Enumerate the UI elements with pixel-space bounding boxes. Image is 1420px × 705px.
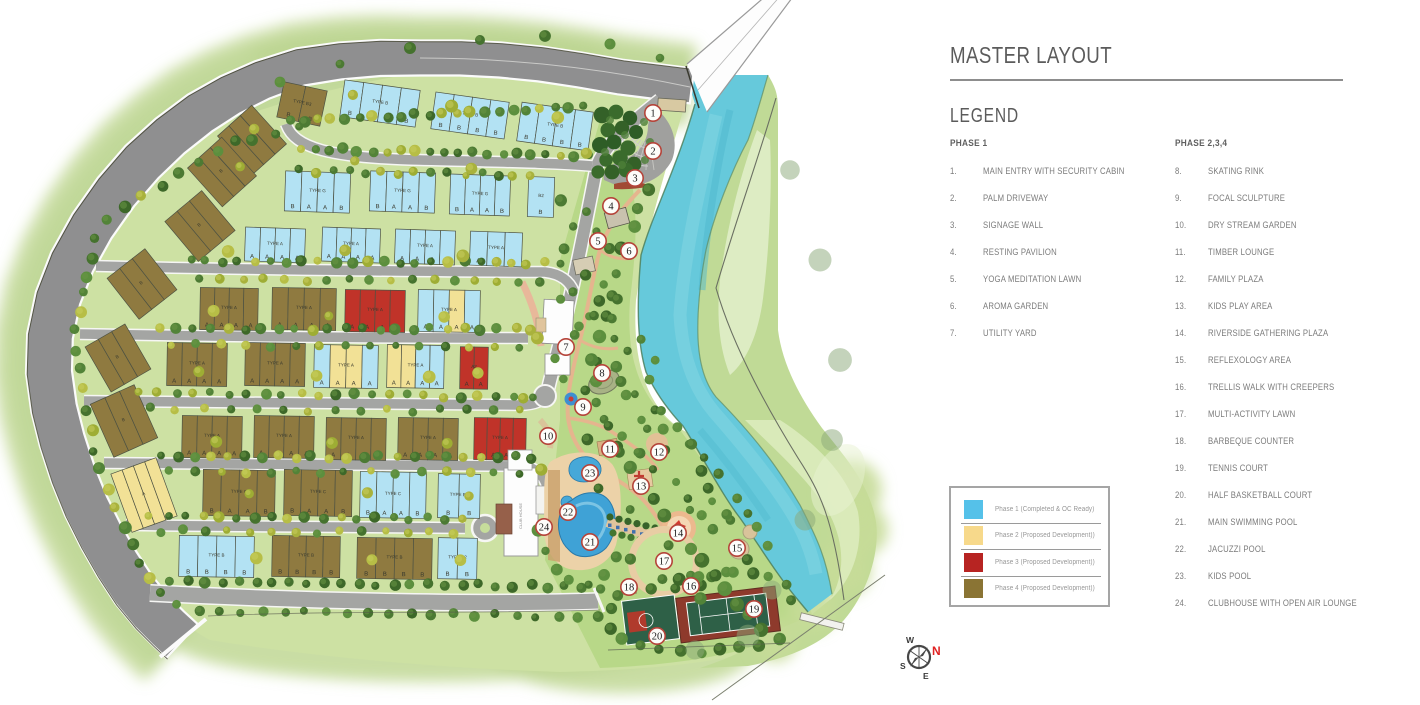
svg-text:A: A	[439, 325, 443, 331]
svg-text:A: A	[454, 325, 458, 331]
svg-text:A: A	[217, 379, 221, 385]
svg-text:B: B	[364, 571, 368, 577]
svg-text:22: 22	[563, 508, 574, 519]
svg-text:B: B	[456, 125, 461, 132]
svg-text:B: B	[438, 123, 443, 130]
svg-text:B: B	[475, 128, 480, 135]
svg-text:1: 1	[650, 109, 655, 120]
svg-text:TYPE A: TYPE A	[367, 307, 383, 312]
svg-text:TYPE A: TYPE A	[348, 435, 364, 440]
svg-text:A: A	[408, 205, 412, 211]
svg-text:TYPE A: TYPE A	[492, 435, 508, 440]
svg-text:A: A	[246, 509, 250, 515]
svg-text:TYPE G: TYPE G	[394, 188, 411, 194]
svg-text:B: B	[290, 509, 294, 515]
svg-text:15: 15	[732, 544, 743, 555]
svg-text:6: 6	[626, 247, 631, 258]
svg-text:A: A	[368, 381, 372, 387]
svg-text:B: B	[424, 206, 428, 212]
svg-text:TYPE B: TYPE B	[208, 552, 224, 557]
svg-text:5: 5	[595, 237, 600, 248]
svg-text:TYPE A: TYPE A	[189, 360, 205, 365]
svg-text:TYPE A: TYPE A	[338, 362, 354, 367]
svg-text:B: B	[186, 569, 190, 575]
svg-text:10: 10	[543, 432, 554, 443]
svg-text:7: 7	[563, 343, 568, 354]
svg-text:B2: B2	[538, 193, 544, 198]
svg-text:TYPE A: TYPE A	[276, 433, 292, 438]
svg-text:TYPE A: TYPE A	[267, 241, 283, 247]
svg-text:A: A	[202, 451, 206, 457]
svg-text:A: A	[485, 208, 489, 214]
svg-text:TYPE A: TYPE A	[417, 243, 433, 249]
svg-text:A: A	[320, 381, 324, 387]
svg-text:B: B	[500, 209, 504, 215]
svg-text:A: A	[327, 254, 331, 260]
svg-text:B: B	[455, 207, 459, 213]
svg-text:A: A	[323, 205, 327, 211]
svg-text:B: B	[312, 570, 316, 576]
svg-text:A: A	[435, 381, 439, 387]
svg-text:A: A	[406, 381, 410, 387]
svg-text:B: B	[445, 572, 449, 578]
svg-text:A: A	[382, 511, 386, 517]
svg-text:TYPE G: TYPE G	[472, 191, 489, 197]
svg-text:TYPE C: TYPE C	[385, 491, 402, 496]
svg-text:CLUB HOUSE: CLUB HOUSE	[518, 503, 523, 529]
svg-text:18: 18	[624, 583, 635, 594]
svg-text:TYPE A: TYPE A	[488, 245, 504, 251]
svg-text:B: B	[524, 135, 529, 142]
svg-text:E: E	[923, 671, 929, 681]
svg-text:TYPE B: TYPE B	[298, 552, 314, 557]
svg-text:19: 19	[749, 605, 760, 616]
svg-text:A: A	[479, 382, 483, 388]
svg-text:12: 12	[654, 448, 665, 459]
svg-text:B: B	[278, 570, 282, 576]
svg-text:24: 24	[539, 523, 550, 534]
svg-text:20: 20	[652, 632, 663, 643]
svg-text:TYPE A: TYPE A	[420, 435, 436, 440]
svg-text:B: B	[383, 572, 387, 578]
svg-text:TYPE G: TYPE G	[309, 188, 326, 194]
svg-text:B: B	[264, 509, 268, 515]
svg-text:B: B	[224, 570, 228, 576]
svg-text:A: A	[202, 379, 206, 385]
svg-text:B: B	[375, 204, 379, 210]
svg-text:8: 8	[599, 369, 604, 380]
svg-text:9: 9	[580, 403, 585, 414]
svg-text:B: B	[242, 570, 246, 576]
svg-text:TYPE A: TYPE A	[267, 360, 283, 365]
svg-text:A: A	[228, 509, 232, 515]
svg-text:4: 4	[608, 202, 614, 213]
svg-text:B: B	[542, 137, 547, 144]
svg-text:TYPE B: TYPE B	[386, 554, 402, 559]
svg-text:W: W	[906, 635, 915, 645]
svg-text:B: B	[420, 572, 424, 578]
svg-text:B: B	[402, 572, 406, 578]
svg-text:A: A	[470, 325, 474, 331]
svg-text:A: A	[219, 323, 223, 329]
svg-text:B: B	[339, 206, 343, 212]
svg-text:17: 17	[659, 557, 670, 568]
svg-text:A: A	[187, 379, 191, 385]
svg-text:TYPE A: TYPE A	[296, 305, 312, 310]
svg-text:S: S	[900, 661, 906, 671]
svg-text:B: B	[329, 570, 333, 576]
svg-text:23: 23	[585, 469, 596, 480]
svg-text:21: 21	[585, 538, 596, 549]
svg-text:A: A	[392, 205, 396, 211]
svg-text:N: N	[932, 644, 941, 658]
svg-text:A: A	[232, 451, 236, 457]
svg-text:A: A	[295, 379, 299, 385]
svg-text:B: B	[493, 130, 498, 137]
svg-text:A: A	[234, 323, 238, 329]
svg-text:B: B	[295, 570, 299, 576]
svg-text:B: B	[415, 511, 419, 517]
svg-text:16: 16	[686, 582, 697, 593]
svg-text:A: A	[403, 453, 407, 459]
svg-text:TYPE A: TYPE A	[408, 362, 424, 367]
svg-text:B: B	[559, 140, 564, 147]
svg-text:B: B	[205, 570, 209, 576]
svg-text:A: A	[392, 381, 396, 387]
svg-text:B: B	[210, 508, 214, 514]
svg-text:2: 2	[650, 147, 655, 158]
svg-text:11: 11	[605, 445, 615, 456]
svg-text:A: A	[289, 451, 293, 457]
svg-text:A: A	[250, 379, 254, 385]
svg-text:B: B	[538, 210, 542, 216]
svg-text:14: 14	[673, 529, 684, 540]
svg-text:B: B	[290, 204, 294, 210]
svg-text:TYPE A: TYPE A	[221, 305, 237, 310]
svg-text:A: A	[336, 381, 340, 387]
svg-text:A: A	[265, 379, 269, 385]
svg-text:B: B	[465, 572, 469, 578]
svg-text:A: A	[470, 208, 474, 214]
svg-text:A: A	[420, 381, 424, 387]
svg-text:A: A	[280, 379, 284, 385]
svg-text:A: A	[307, 205, 311, 211]
svg-text:TYPE C: TYPE C	[310, 489, 327, 494]
svg-text:A: A	[352, 381, 356, 387]
svg-text:13: 13	[636, 482, 647, 493]
svg-text:A: A	[172, 379, 176, 385]
svg-text:B: B	[467, 511, 471, 517]
svg-text:B: B	[577, 142, 582, 149]
svg-text:A: A	[465, 382, 469, 388]
svg-text:3: 3	[632, 174, 637, 185]
svg-text:A: A	[399, 511, 403, 517]
svg-text:A: A	[217, 451, 221, 457]
